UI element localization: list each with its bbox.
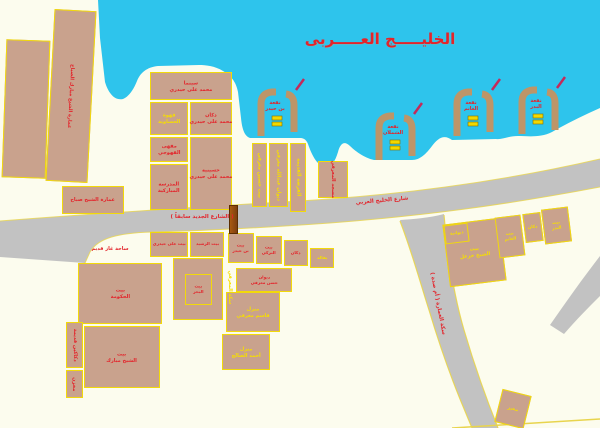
sea-title: الخليـــــج العـــــربى [290,30,470,48]
building-E4-label: مخزن [71,377,77,391]
building-R4-label: بيت البدر [551,220,562,232]
building-R4: بيت البدر [541,206,572,244]
building-C2: قهوة الحساوية [150,102,188,135]
building-C6-label: المدرسة المباركية [158,181,180,194]
building-G5-label: ديوان حسن معرفي [250,275,277,286]
building-G4: بقالة [310,248,334,268]
building-F1: بيت على حيدري [150,232,188,257]
building-H: بيت البحر [173,258,223,320]
building-S3-label: الفرضة القديمة [295,158,301,196]
building-F1-label: بيت على حيدري [153,242,186,247]
building-S4: مسجد المعرفي [318,161,348,198]
pier-2-label: نقعة الشملان [382,124,404,136]
building-F2: بيت الرشيد [190,232,224,257]
alley-label: سكة المعرفي [227,271,233,301]
building-G1: بيت بن حيدر [228,233,254,263]
building-S1: بيت حسين معرفي [252,143,267,207]
building-L1 [2,39,51,178]
building-G4-label: بقالة [317,255,327,260]
building-L2: عمارة الشيخ مبارك الصباح [46,9,97,183]
building-E4: مخزن [66,370,83,398]
building-BR-label: مخبز [507,405,519,413]
building-C3: دكان محمد على حيدري [190,102,232,135]
building-E1-label: بيت الحكومة [110,287,129,300]
building-C3-label: دكان محمد على حيدري [190,112,233,125]
building-F2-label: بيت الرشيد [195,242,218,247]
building-H-label: بيت البحر [193,284,203,295]
building-L3-label: عمارة الشيخ صباح [71,197,116,203]
building-C5-label: حسينية محمد على حيدري [190,167,233,180]
building-C1-label: سينما محمد على حيدري [170,80,213,93]
building-E2: بيت الشيخ مبارك [84,326,160,388]
building-E1: بيت الحكومة [78,263,162,324]
building-L3: عمارة الشيخ صباح [62,186,124,214]
building-C4: مقهى القهوجي [150,137,188,162]
building-C2-label: قهوة الحساوية [158,112,180,125]
building-R1a: ديوانية [443,223,469,245]
building-S1-label: بيت حسين معرفي [256,152,262,197]
building-G6: منزل قاسم معرفي [226,292,280,332]
building-S2: ديوان عبدالله معرفي [269,143,288,207]
building-S3: الفرضة القديمة [290,143,306,212]
building-G3-label: دكان [291,250,301,255]
pier-3-label: نقعة الغانم [460,100,482,112]
building-G2-label: بيت التركي [262,245,276,256]
building-G5: ديوان حسن معرفي [236,268,292,292]
building-R1-label: بيت الشيخ خزعل [459,244,491,260]
building-R2-label: بيت الغانم [503,231,516,243]
building-S4-label: مسجد المعرفي [330,161,336,199]
building-G7-label: منزل أحمد الصالح [231,346,260,359]
building-G2: بيت التركي [256,236,282,264]
building-G3: دكان [284,240,308,266]
square-label: ساحة غاز قديم [92,246,123,252]
building-H-courtyard: بيت البحر [185,274,212,305]
building-R1a-label: ديوانية [449,230,463,237]
building-G7: منزل أحمد الصالح [222,334,270,370]
pier-4-label: نقعة البدر [525,98,547,110]
building-C4-label: مقهى القهوجي [158,143,180,156]
building-E3: دكاكين قديمة [66,322,83,368]
building-C1: سينما محمد على حيدري [150,72,232,100]
building-R3-label: دكان [528,224,538,230]
building-S2-label: ديوان عبدالله معرفي [275,149,281,200]
building-G6-label: منزل قاسم معرفي [236,306,269,319]
building-R3: دكان [522,212,543,243]
building-E2-label: بيت الشيخ مبارك [107,351,138,364]
old-street-label: ( الشارع الجديد سابقاً ) [171,213,226,219]
building-R2: بيت الغانم [495,215,526,259]
building-E3-label: دكاكين قديمة [71,329,77,362]
building-L2-label: عمارة الشيخ مبارك الصباح [66,64,76,129]
building-G1-label: بيت بن حيدر [233,243,249,254]
building-C6: المدرسة المباركية [150,164,188,210]
right-road-stub [550,256,600,334]
old-city-map: الخليـــــج العـــــربى نقعة بن حيدر نقع… [0,0,600,428]
pier-1-label: نقعة بن حيدر [264,100,286,112]
building-C5: حسينية محمد على حيدري [190,137,232,210]
